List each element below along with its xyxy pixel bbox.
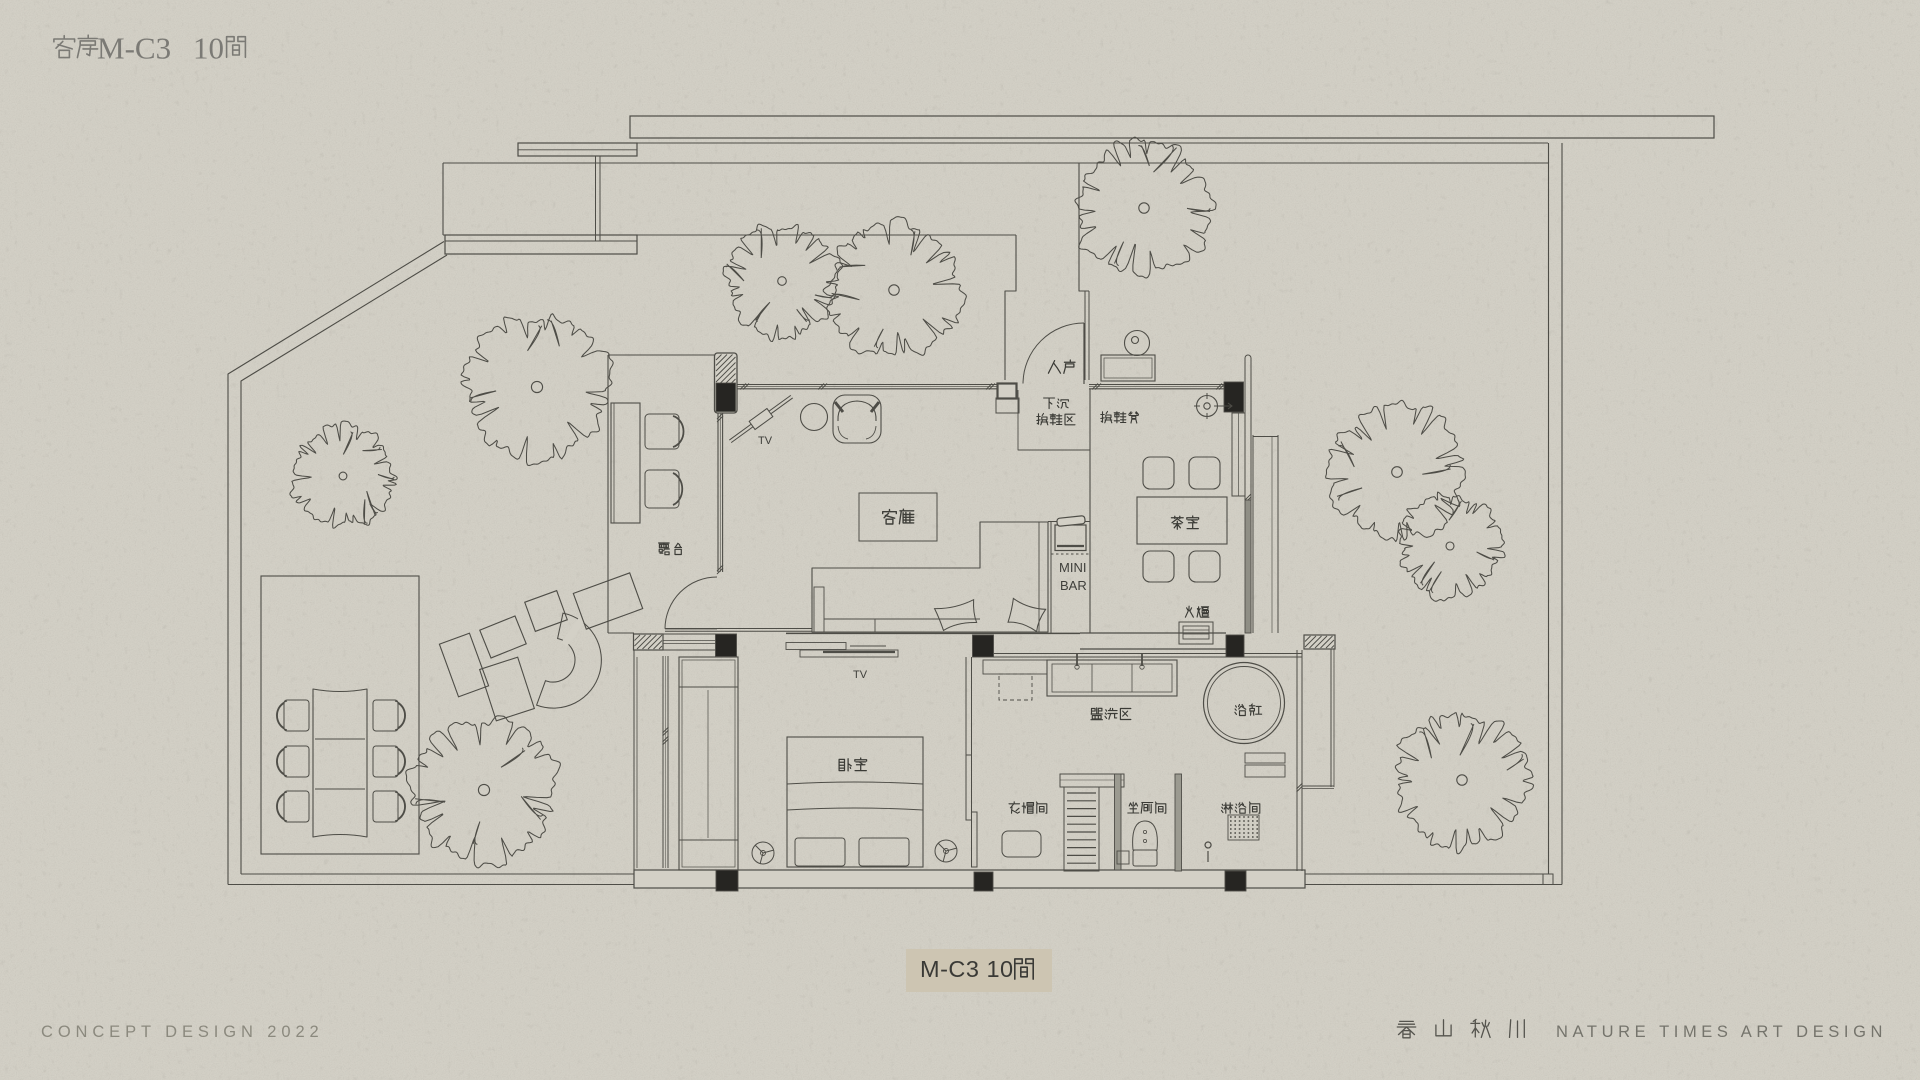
svg-text:BAR: BAR <box>1060 578 1087 593</box>
svg-text:CONCEPT DESIGN 2022: CONCEPT DESIGN 2022 <box>41 1023 324 1041</box>
svg-text:M-C3: M-C3 <box>97 31 171 66</box>
svg-text:NATURE TIMES ART DESIGN: NATURE TIMES ART DESIGN <box>1556 1023 1887 1041</box>
svg-text:M-C3 10: M-C3 10 <box>920 956 1014 982</box>
svg-text:MINI: MINI <box>1059 560 1086 575</box>
svg-text:TV: TV <box>758 435 773 447</box>
svg-text:TV: TV <box>853 669 868 681</box>
svg-text:10: 10 <box>193 31 224 66</box>
